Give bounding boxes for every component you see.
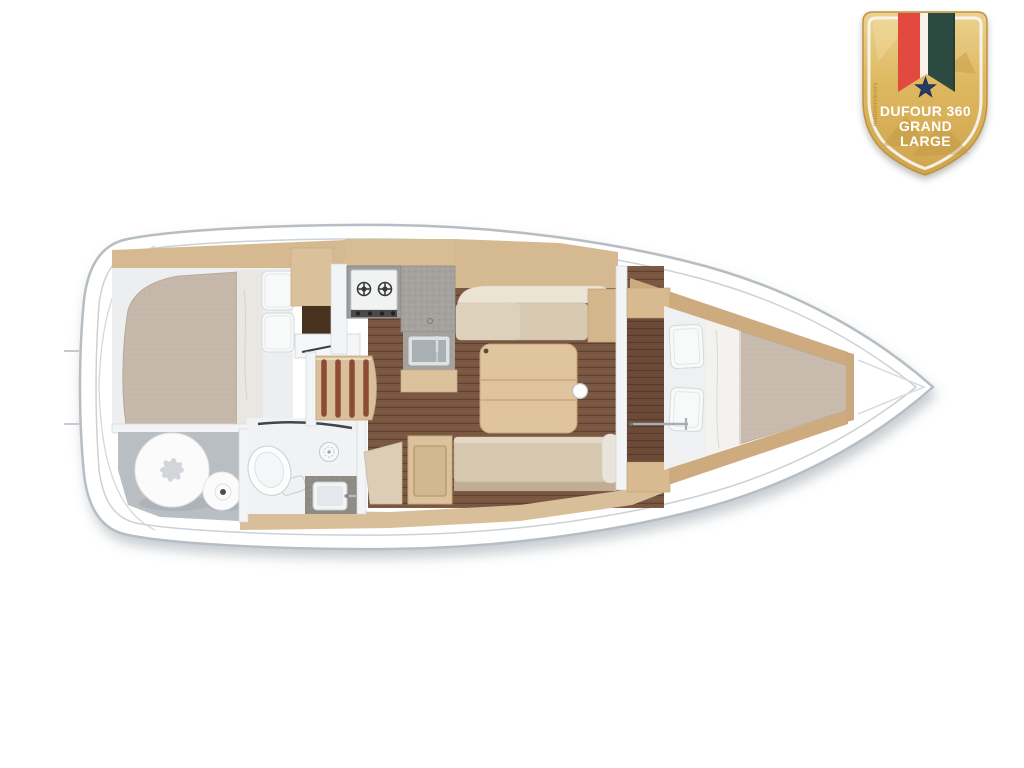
shower-drain-icon [320, 443, 339, 462]
galley-counter [401, 266, 455, 332]
forward-cabinet-top [627, 288, 670, 318]
badge-title-line3: LARGE [900, 133, 951, 149]
saloon-bench-bottom [454, 434, 619, 491]
aft-wardrobe [291, 248, 333, 306]
companionway-stairs [316, 356, 377, 420]
chart-shelf [295, 334, 360, 358]
galley-sink [403, 332, 455, 370]
pillow [262, 313, 294, 352]
badge-watermark: madeforsailors [873, 82, 879, 126]
berth-head-trim [846, 352, 854, 422]
badge: DUFOUR 360 GRAND LARGE madeforsailors [854, 4, 1000, 188]
aft-berth-sheet [237, 270, 263, 425]
galley-cabinet-front [401, 370, 457, 392]
sofa-end-cabinet [588, 289, 617, 342]
head-wall-right [357, 418, 366, 514]
head-compartment [242, 418, 366, 514]
locker-bulkhead [239, 429, 248, 522]
forward-floor [627, 318, 668, 462]
storage-cabinet [408, 436, 452, 504]
badge-title-line1: DUFOUR 360 [880, 103, 971, 119]
badge-title-line2: GRAND [899, 118, 952, 134]
vanity-sink [305, 476, 359, 514]
burner-icon [357, 282, 371, 296]
galley-wall [331, 264, 347, 354]
sail-locker [118, 429, 248, 522]
companionway-wall [306, 352, 316, 426]
burner-icon [378, 282, 392, 296]
pillow [262, 271, 294, 310]
page: DUFOUR 360 GRAND LARGE madeforsailors [0, 0, 1024, 768]
forward-bulkhead [616, 266, 627, 490]
saloon-table [480, 344, 588, 433]
table-knob [573, 384, 588, 399]
nav-seat [364, 442, 402, 504]
forward-cabinet-bottom [627, 462, 670, 492]
stove-icon [347, 266, 401, 318]
